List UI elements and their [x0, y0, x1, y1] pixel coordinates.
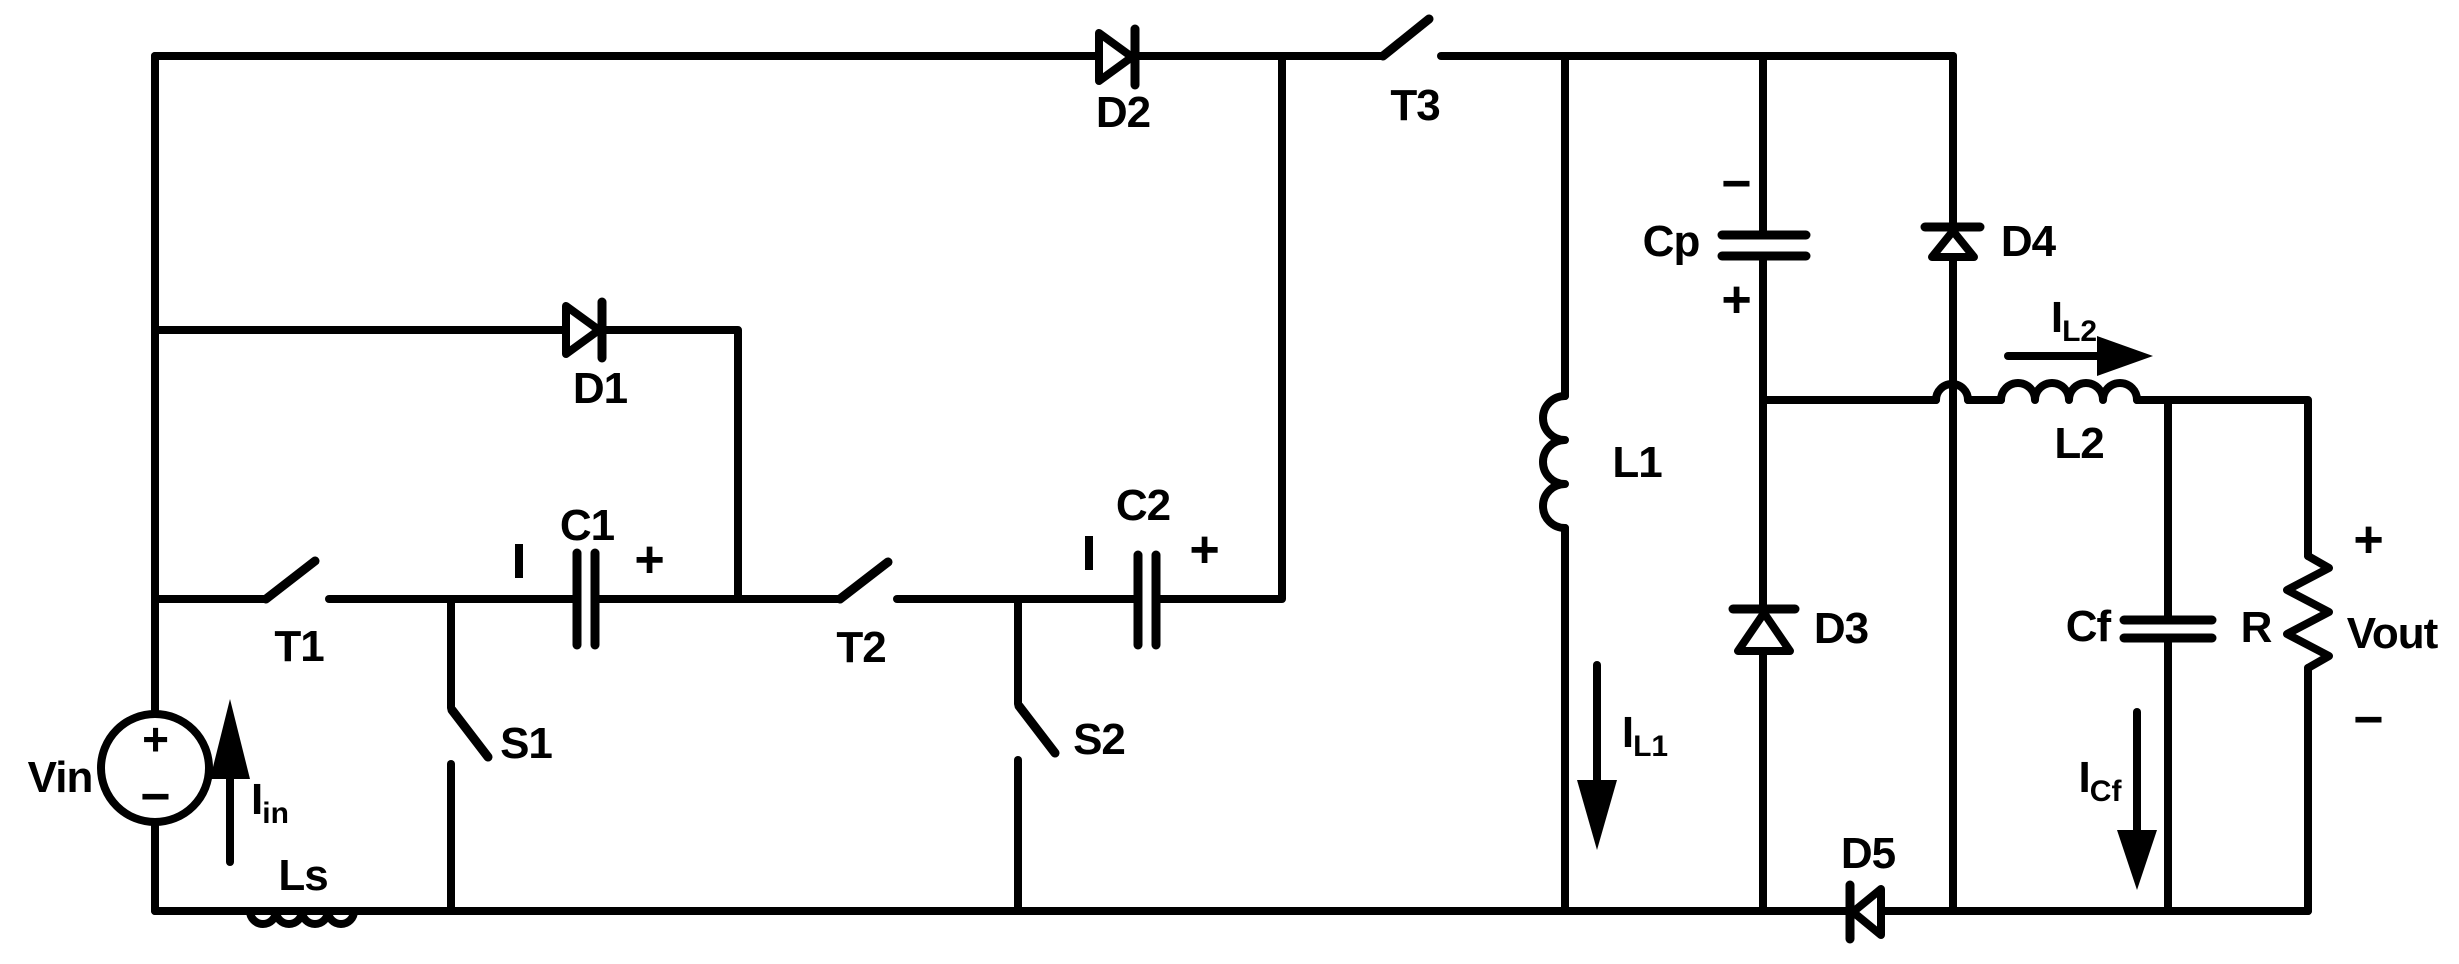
- switch-T2-blade: [840, 562, 888, 599]
- switch-T3-blade: [1383, 19, 1429, 56]
- switch-S2-blade: [1019, 706, 1055, 753]
- circuit-diagram: Vin + − Iin Ls T1 S1 T2 S2 T3 C1 + C2 + …: [0, 0, 2459, 964]
- capacitor-C1-plus-sign: +: [634, 534, 663, 586]
- capacitor-C2-label: C2: [1116, 484, 1170, 528]
- output-Vout-label: Vout: [2347, 612, 2438, 656]
- switch-T1-blade: [266, 561, 315, 599]
- inductor-L1-coil: [1543, 396, 1565, 528]
- current-ICf-label: ICf: [2079, 756, 2122, 800]
- inductor-L2-coil: [2001, 383, 2137, 400]
- inductor-L2-label: L2: [2054, 422, 2103, 466]
- capacitor-C1-label: C1: [560, 504, 614, 548]
- switch-S2-label: S2: [1073, 718, 1125, 762]
- capacitor-Cp-label: Cp: [1643, 220, 1700, 264]
- inductor-L1-label: L1: [1612, 441, 1661, 485]
- diode-D4-triangle: [1932, 231, 1974, 257]
- wire-middle-5: [1160, 56, 1282, 599]
- current-IL2-label: IL2: [2051, 296, 2097, 340]
- capacitor-Cf-label: Cf: [2066, 605, 2110, 649]
- diode-D1-triangle: [566, 306, 599, 354]
- inductor-Ls-label: Ls: [278, 854, 327, 898]
- arrow-IL2-head: [2097, 336, 2153, 376]
- output-Vout-plus-sign: +: [2353, 514, 2382, 566]
- diode-D1-label: D1: [573, 367, 627, 411]
- wire-output-right: [2137, 400, 2308, 556]
- diode-D2-triangle: [1099, 33, 1132, 81]
- source-Vin-label: Vin: [28, 756, 93, 800]
- arrow-ICf-head: [2117, 830, 2157, 890]
- diode-D5-label: D5: [1841, 832, 1895, 876]
- switch-T1-label: T1: [274, 625, 323, 669]
- source-Vin-minus-sign: −: [140, 771, 169, 823]
- capacitor-Cp-plus-sign: +: [1721, 274, 1750, 326]
- capacitor-Cp-minus-sign: −: [1721, 158, 1750, 210]
- diode-D3-triangle: [1738, 613, 1790, 651]
- capacitor-C2-neg-mark: [1085, 536, 1093, 570]
- diode-D5-triangle: [1853, 889, 1881, 935]
- switch-S1-blade: [452, 710, 488, 757]
- switch-S1-label: S1: [500, 722, 552, 766]
- resistor-R-label: R: [2241, 606, 2272, 650]
- arrow-Iin-head: [210, 699, 250, 779]
- resistor-R-zigzag: [2287, 556, 2329, 668]
- arrow-IL1-head: [1577, 780, 1617, 850]
- source-Vin-plus-sign: +: [142, 716, 168, 762]
- capacitor-C2-plus-sign: +: [1189, 524, 1218, 576]
- circuit-wiring: [0, 0, 2459, 964]
- switch-T3-label: T3: [1390, 84, 1439, 128]
- current-Iin-label: Iin: [251, 778, 289, 822]
- diode-D4-label: D4: [2001, 220, 2055, 264]
- capacitor-C1-neg-mark: [515, 544, 523, 578]
- diode-D3-label: D3: [1814, 607, 1868, 651]
- output-Vout-minus-sign: −: [2353, 694, 2382, 746]
- diode-D2-label: D2: [1096, 91, 1150, 135]
- switch-T2-label: T2: [836, 626, 885, 670]
- current-IL1-label: IL1: [1622, 711, 1668, 755]
